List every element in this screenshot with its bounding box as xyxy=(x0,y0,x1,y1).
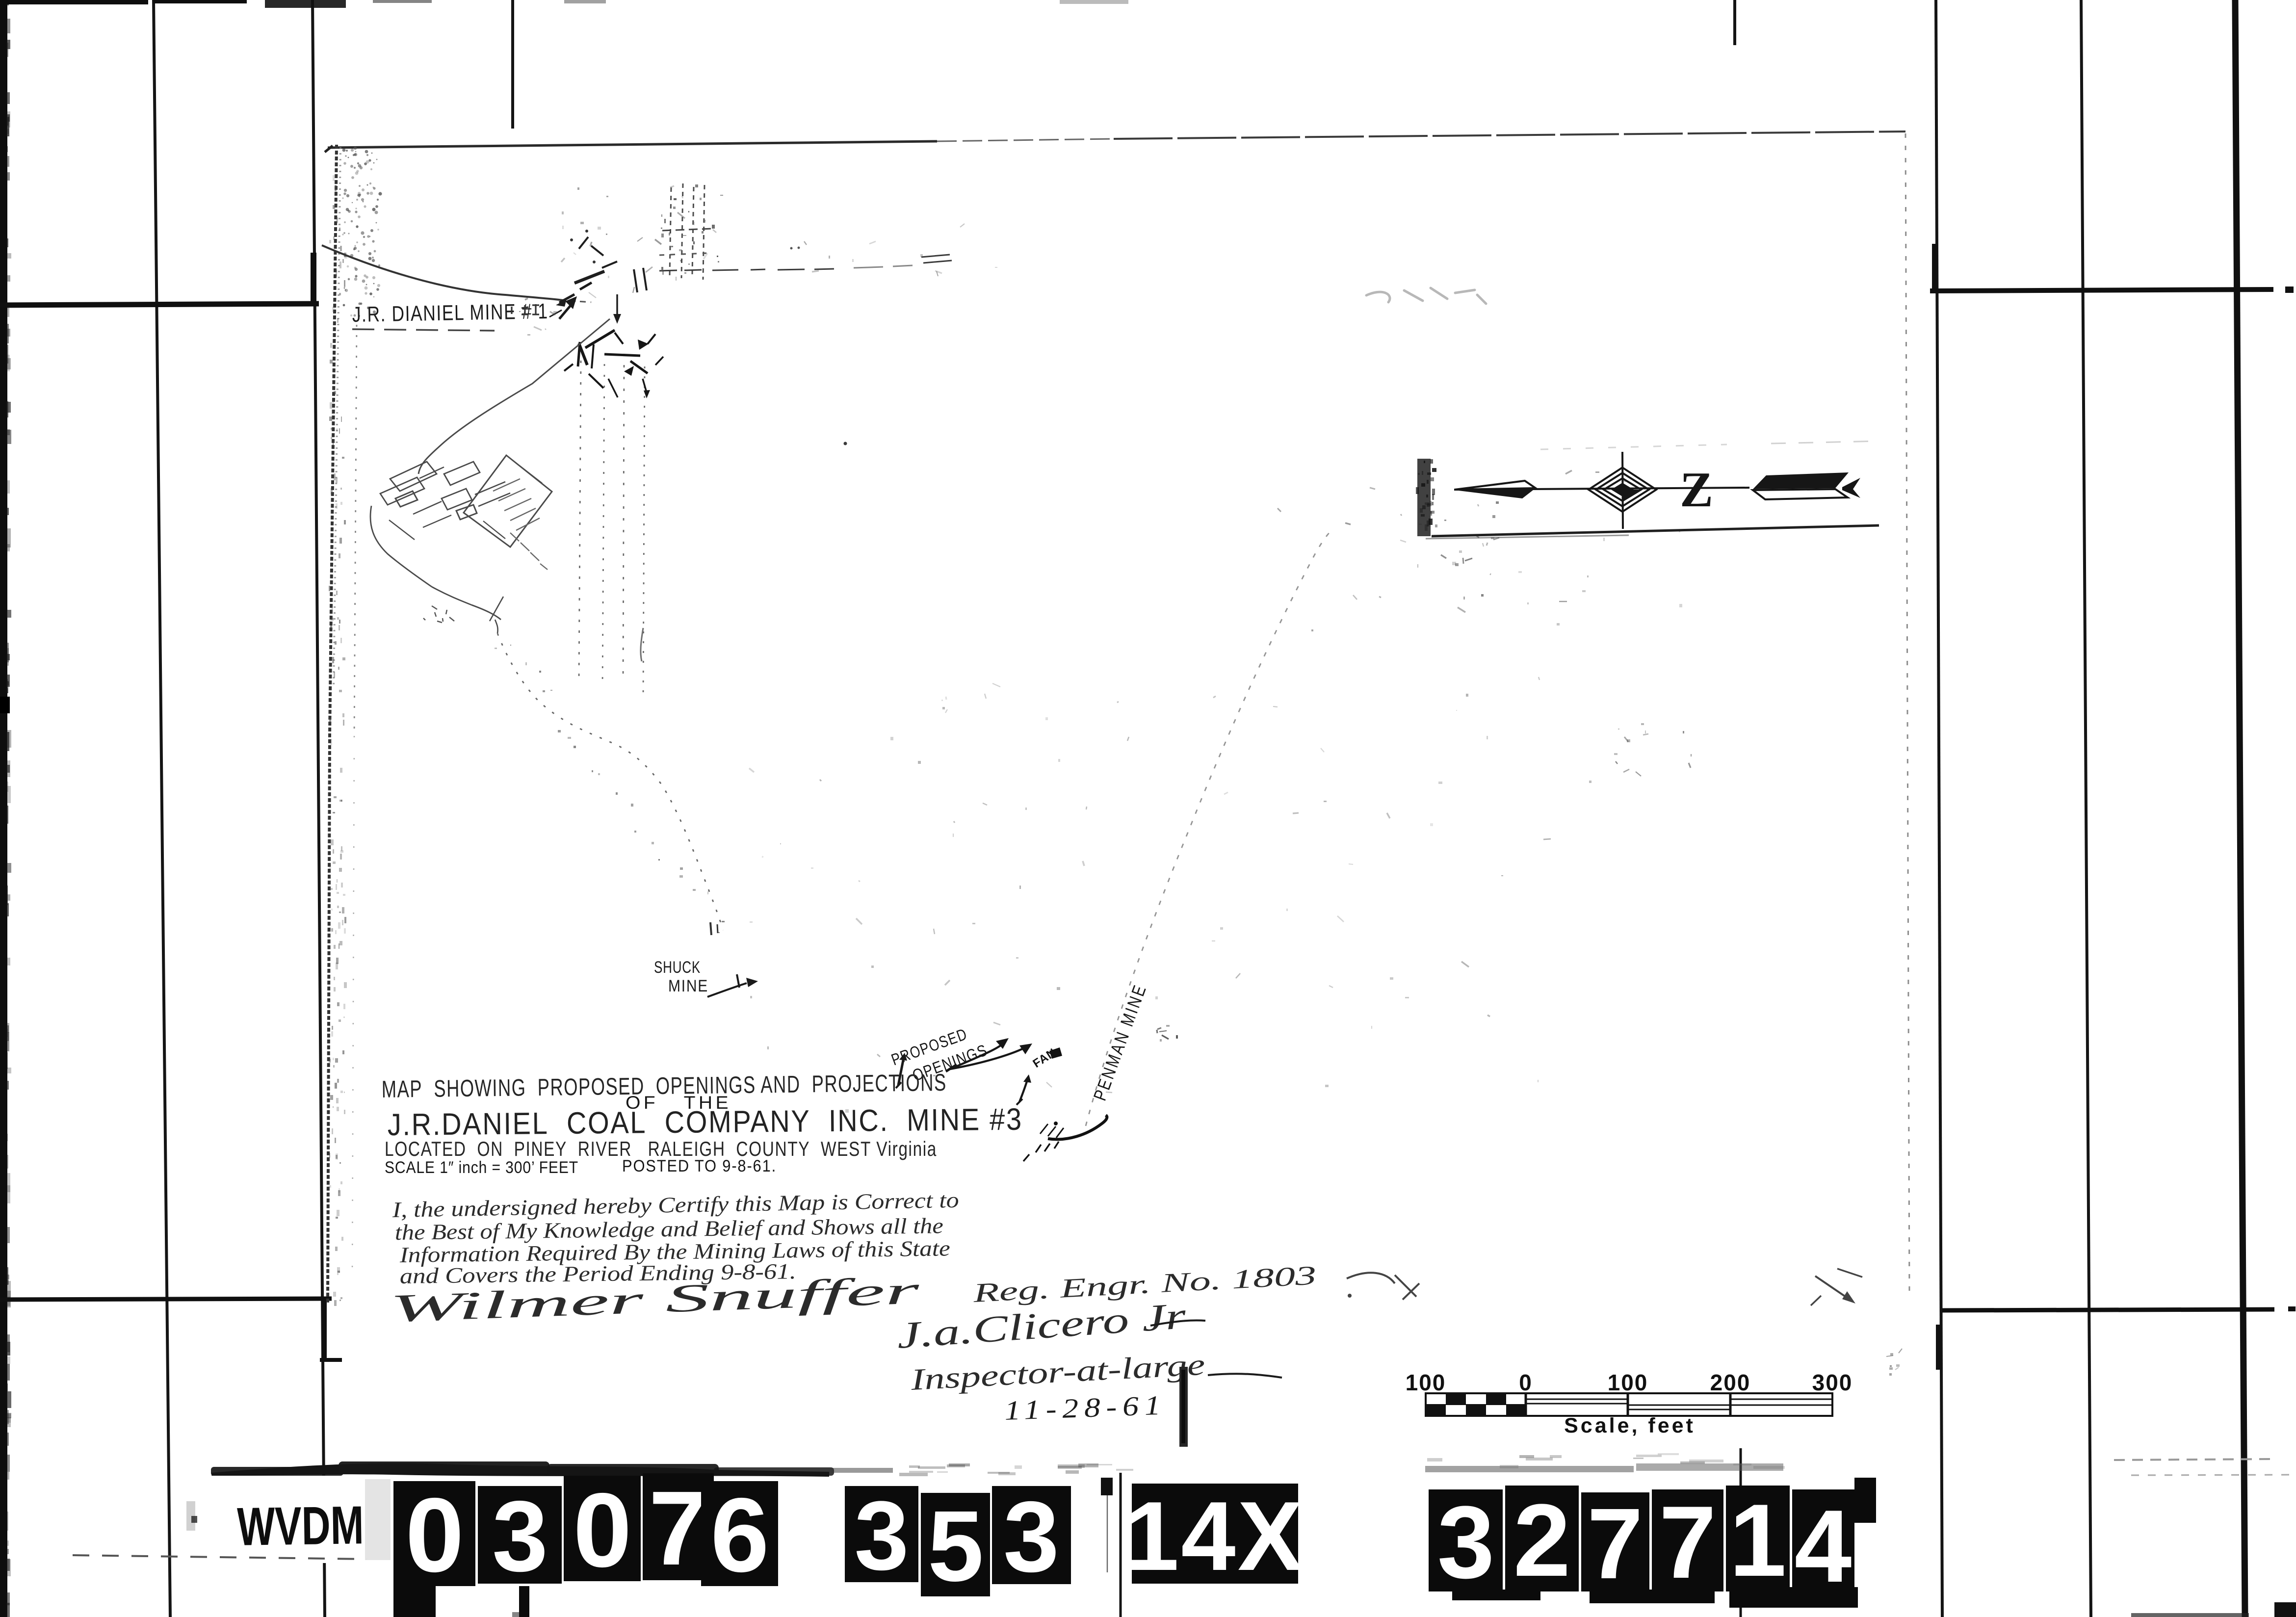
svg-text:7: 7 xyxy=(1659,1485,1717,1600)
svg-text:MINE: MINE xyxy=(668,977,708,995)
svg-text:2: 2 xyxy=(1513,1483,1571,1598)
svg-text:Z: Z xyxy=(1680,462,1713,518)
svg-text:3: 3 xyxy=(1437,1485,1495,1600)
svg-text:SCALE 1″ inch = 300’ FEET: SCALE 1″ inch = 300’ FEET xyxy=(385,1158,578,1177)
svg-text:0: 0 xyxy=(405,1476,464,1594)
svg-text:7: 7 xyxy=(649,1469,707,1587)
svg-text:100: 100 xyxy=(1406,1370,1446,1395)
svg-text:WVDM: WVDM xyxy=(237,1495,365,1557)
svg-text:14X: 14X xyxy=(1124,1482,1305,1591)
svg-text:5: 5 xyxy=(928,1490,984,1602)
svg-text:1: 1 xyxy=(1729,1483,1787,1598)
svg-text:100: 100 xyxy=(1608,1370,1648,1395)
svg-text:3: 3 xyxy=(1003,1481,1059,1593)
svg-text:3: 3 xyxy=(854,1481,909,1591)
svg-text:300: 300 xyxy=(1812,1370,1853,1395)
svg-text:POSTED TO 9-8-61.: POSTED TO 9-8-61. xyxy=(622,1157,777,1175)
svg-text:0: 0 xyxy=(573,1471,632,1589)
svg-text:0: 0 xyxy=(1519,1370,1533,1395)
svg-text:J.R. DIANIEL MINE # 1: J.R. DIANIEL MINE # 1 xyxy=(352,299,548,327)
svg-text:11-28-61: 11-28-61 xyxy=(1004,1390,1167,1426)
svg-text:6: 6 xyxy=(710,1476,769,1594)
svg-text:SHUCK: SHUCK xyxy=(654,958,701,977)
svg-text:J.R.DANIEL COAL COMPANY INC: J.R.DANIEL COAL COMPANY INC. MINE #3 xyxy=(388,1102,1023,1142)
svg-text:Scale, feet: Scale, feet xyxy=(1564,1414,1696,1437)
svg-text:4: 4 xyxy=(1795,1488,1852,1604)
svg-text:3: 3 xyxy=(492,1480,548,1592)
svg-text:7: 7 xyxy=(1587,1487,1643,1600)
svg-text:200: 200 xyxy=(1710,1370,1751,1395)
